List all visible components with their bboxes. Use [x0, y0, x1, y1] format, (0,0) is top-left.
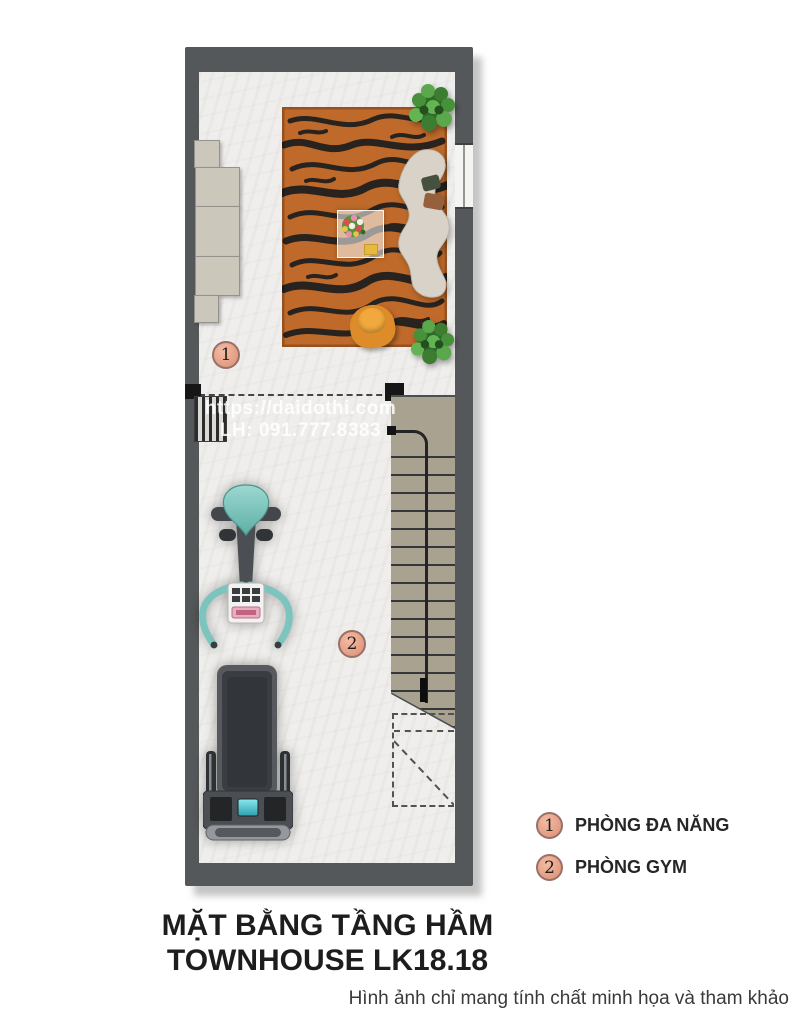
under-stair-diagonal	[394, 715, 454, 805]
sideboard-door	[195, 256, 240, 296]
handrail-end-mark	[420, 678, 427, 702]
stair-handrail	[392, 430, 428, 703]
window-icon	[455, 143, 473, 209]
watermark: https://daidothi.com LH: 091.777.8383	[193, 398, 408, 442]
room-badge-number: 1	[221, 345, 232, 365]
plan-title-line2: TOWNHOUSE LK18.18	[130, 943, 525, 978]
disclaimer-text: Hình ảnh chỉ mang tính chất minh họa và …	[349, 988, 789, 1010]
exercise-bike-icon	[198, 483, 294, 651]
basement-floor-plan: 1 2	[185, 47, 473, 886]
coffee-table-icon	[337, 210, 384, 258]
curved-sofa-icon	[393, 148, 453, 298]
potted-plant-icon	[407, 82, 457, 134]
sideboard-top	[194, 140, 220, 168]
legend-label: PHÒNG GYM	[575, 857, 687, 878]
flower-bouquet-icon	[339, 212, 369, 242]
room-badge-multipurpose: 1	[212, 341, 240, 369]
under-stair-void	[392, 713, 454, 807]
plan-title-line1: MẶT BẰNG TẦNG HẦM	[130, 908, 525, 943]
legend-item-multipurpose: 1 PHÒNG ĐA NĂNG	[536, 812, 729, 839]
chair-seat	[357, 306, 387, 335]
legend-badge-1: 1	[536, 812, 563, 839]
watermark-url: https://daidothi.com	[193, 398, 408, 420]
room-badge-gym: 2	[338, 630, 366, 658]
notepad-icon	[364, 244, 378, 255]
legend-label: PHÒNG ĐA NĂNG	[575, 815, 729, 836]
legend: 1 PHÒNG ĐA NĂNG 2 PHÒNG GYM	[536, 812, 729, 896]
potted-plant-icon	[409, 318, 456, 367]
floor-plan-page: 1 2	[0, 0, 797, 1024]
plan-title: MẶT BẰNG TẦNG HẦM TOWNHOUSE LK18.18	[130, 908, 525, 978]
treadmill-icon	[203, 665, 293, 845]
watermark-phone: LH: 091.777.8383	[193, 420, 408, 442]
sideboard-bottom	[194, 295, 219, 323]
legend-badge-number: 2	[544, 858, 555, 878]
sideboard-door	[195, 206, 240, 257]
room-divider-dashed-line	[199, 394, 392, 396]
legend-item-gym: 2 PHÒNG GYM	[536, 854, 729, 881]
sideboard-door	[195, 167, 240, 207]
legend-badge-number: 1	[544, 816, 555, 836]
room-badge-number: 2	[347, 634, 358, 654]
legend-badge-2: 2	[536, 854, 563, 881]
